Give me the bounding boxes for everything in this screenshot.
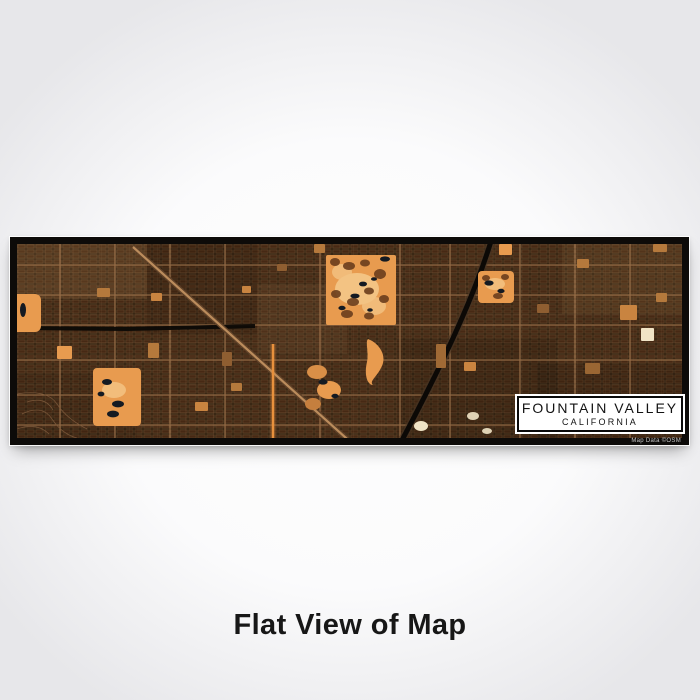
central-park-block bbox=[326, 255, 396, 325]
map-credit: Map Data ©OSM bbox=[631, 438, 681, 445]
right-park-block bbox=[478, 271, 514, 303]
map-title-card-frame: FOUNTAIN VALLEY CALIFORNIA bbox=[517, 396, 683, 432]
golf-course-block bbox=[93, 368, 141, 426]
map-print: FOUNTAIN VALLEY CALIFORNIA Map Data ©OSM bbox=[10, 237, 689, 445]
left-edge-park bbox=[17, 294, 41, 332]
map-subtitle: CALIFORNIA bbox=[562, 417, 638, 427]
map-title: FOUNTAIN VALLEY bbox=[522, 401, 678, 416]
product-caption: Flat View of Map bbox=[0, 609, 700, 642]
map-title-card: FOUNTAIN VALLEY CALIFORNIA bbox=[515, 394, 685, 434]
